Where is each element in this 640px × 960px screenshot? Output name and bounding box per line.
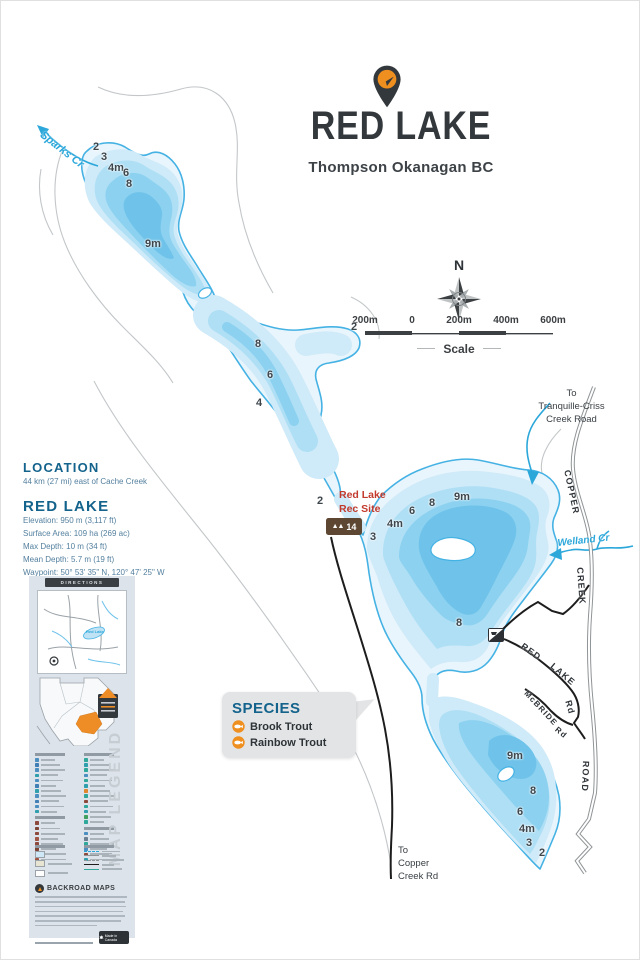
scale-label: Scale bbox=[443, 342, 474, 356]
legend-item-text-bar bbox=[90, 833, 104, 835]
depth-label: 9m bbox=[507, 750, 523, 762]
legend-row bbox=[35, 821, 80, 825]
page-subtitle: Thompson Okanagan BC bbox=[251, 159, 551, 176]
depth-label: 8 bbox=[429, 497, 435, 509]
legend-item-icon bbox=[35, 784, 39, 788]
copyright-bar bbox=[35, 942, 93, 944]
directions-inset-map: Red Lake bbox=[37, 590, 127, 674]
fineprint-line bbox=[35, 911, 123, 913]
depth-label: 8 bbox=[456, 617, 462, 629]
legend-row bbox=[35, 779, 80, 783]
depth-label: 8 bbox=[530, 785, 536, 797]
legend-row bbox=[35, 805, 80, 809]
legend-item-icon bbox=[35, 779, 39, 783]
species-item-label: Brook Trout bbox=[250, 721, 312, 733]
north-label: N bbox=[439, 257, 479, 273]
legend-item-icon bbox=[84, 815, 88, 819]
legend-item-icon bbox=[84, 768, 88, 772]
legend-row bbox=[35, 837, 80, 841]
legend-item-icon bbox=[84, 800, 88, 804]
species-item: Brook Trout bbox=[232, 720, 346, 733]
legend-sidebar: DIRECTIONS Red Lake bbox=[29, 576, 135, 938]
species-item: Rainbow Trout bbox=[232, 736, 346, 749]
legend-item-icon bbox=[84, 832, 88, 836]
road-label-road: ROAD bbox=[580, 761, 591, 793]
depth-label: 2 bbox=[351, 321, 357, 333]
scale-tick: 200m bbox=[446, 315, 472, 326]
depth-label: 6 bbox=[409, 505, 415, 517]
brand-logo-icon bbox=[35, 884, 44, 893]
legend-item-text-bar bbox=[41, 806, 64, 808]
depth-label: 9m bbox=[454, 491, 470, 503]
destination-line: To bbox=[509, 387, 634, 400]
legend-item-icon bbox=[35, 810, 39, 814]
legend-item-icon bbox=[35, 821, 39, 825]
location-block: LOCATION 44 km (27 mi) east of Cache Cre… bbox=[23, 460, 193, 580]
scale-bar: 200m 0 200m 400m 600m Scale bbox=[353, 315, 565, 356]
map-poster-page: RED LAKE Thompson Okanagan BC N 200m 0 2… bbox=[0, 0, 640, 960]
legend-item-icon bbox=[84, 805, 88, 809]
destination-line: Creek Road bbox=[509, 413, 634, 426]
destination-label-ne: To Tranquille-Criss Creek Road bbox=[509, 387, 634, 426]
depth-label: 2 bbox=[539, 847, 545, 859]
made-in-canada-label: Made in Canada bbox=[105, 934, 129, 942]
depth-label: 2 bbox=[93, 141, 99, 153]
inset-lake-label: Red Lake bbox=[86, 629, 104, 634]
legend-row bbox=[35, 794, 80, 798]
depth-label: 6 bbox=[517, 806, 523, 818]
scale-tick: 400m bbox=[493, 315, 519, 326]
destination-line: To bbox=[398, 844, 468, 857]
brand-footer-row: Made in Canada bbox=[35, 931, 129, 944]
page-title: RED LAKE bbox=[274, 104, 529, 149]
scale-tick: 0 bbox=[409, 315, 415, 326]
legend-row bbox=[35, 774, 80, 778]
scale-ticks: 200m 0 200m 400m 600m bbox=[353, 315, 565, 328]
legend-item-icon bbox=[35, 837, 39, 841]
species-callout: SPECIES Brook Trout Rainbow Trout bbox=[222, 692, 356, 758]
legend-row bbox=[35, 768, 80, 772]
legend-item-text-bar bbox=[41, 780, 63, 782]
made-in-canada-badge: Made in Canada bbox=[99, 931, 129, 944]
legend-item-text-bar bbox=[41, 759, 55, 761]
legend-item-icon bbox=[84, 758, 88, 762]
lake-indicators bbox=[35, 842, 80, 877]
legend-item-text-bar bbox=[90, 800, 108, 802]
brand-title: BACKROAD MAPS bbox=[47, 885, 115, 892]
depth-label: 3 bbox=[526, 837, 532, 849]
legend-item-icon bbox=[35, 763, 39, 767]
legend-item-text-bar bbox=[41, 790, 61, 792]
depth-label: 2 bbox=[317, 495, 323, 507]
line-indicators bbox=[84, 842, 129, 877]
species-item-label: Rainbow Trout bbox=[250, 737, 326, 749]
depth-label: 4 bbox=[256, 397, 262, 409]
legend-item-icon bbox=[35, 789, 39, 793]
depth-label: 4m bbox=[108, 162, 124, 174]
destination-line: Copper bbox=[398, 857, 468, 870]
legend-item-icon bbox=[84, 784, 88, 788]
legend-item-icon bbox=[84, 774, 88, 778]
destination-line: Tranquille-Criss bbox=[509, 400, 634, 413]
legend-item-icon bbox=[84, 763, 88, 767]
legend-item-text-bar bbox=[90, 764, 109, 766]
legend-item-text-bar bbox=[90, 838, 109, 840]
fineprint-line bbox=[35, 901, 125, 903]
lake-info-line: Mean Depth: 5.7 m (19 ft) bbox=[23, 554, 193, 567]
legend-item-icon bbox=[35, 774, 39, 778]
legend-item-icon bbox=[84, 789, 88, 793]
legend-item-icon bbox=[35, 758, 39, 762]
fineprint-line bbox=[35, 906, 126, 908]
legend-item-icon bbox=[35, 794, 39, 798]
lake-info-heading: RED LAKE bbox=[23, 498, 193, 515]
legend-row bbox=[35, 784, 80, 788]
legend-item-icon bbox=[84, 779, 88, 783]
legend-row bbox=[35, 758, 80, 762]
legend-item-text-bar bbox=[90, 759, 104, 761]
maple-leaf-icon bbox=[99, 935, 104, 940]
rec-site-line: Rec Site bbox=[339, 502, 386, 516]
legend-item-icon bbox=[35, 827, 39, 831]
legend-item-text-bar bbox=[41, 811, 57, 813]
legend-item-icon bbox=[35, 768, 39, 772]
species-heading: SPECIES bbox=[232, 700, 346, 717]
mini-indicators bbox=[35, 842, 129, 877]
depth-label: 8 bbox=[255, 338, 261, 350]
legend-item-text-bar bbox=[41, 800, 59, 802]
legend-item-text-bar bbox=[41, 828, 60, 830]
legend-item-icon bbox=[84, 837, 88, 841]
legend-item-icon bbox=[35, 832, 39, 836]
fineprint-line bbox=[35, 925, 97, 927]
legend-row bbox=[35, 827, 80, 831]
copper-creek-road-fill bbox=[573, 387, 596, 873]
fish-icon bbox=[232, 720, 245, 733]
rec-site-label: Red Lake Rec Site bbox=[339, 488, 386, 516]
legend-item-text-bar bbox=[41, 785, 56, 787]
depth-label: 8 bbox=[126, 178, 132, 190]
fish-icon bbox=[232, 736, 245, 749]
depth-label: 9m bbox=[145, 238, 161, 250]
legend-row bbox=[35, 832, 80, 836]
legend-item-text-bar bbox=[90, 811, 106, 813]
lake-info-line: Surface Area: 109 ha (269 ac) bbox=[23, 528, 193, 541]
fineprint-line bbox=[35, 915, 125, 917]
legend-item-text-bar bbox=[90, 785, 105, 787]
depth-label: 4m bbox=[519, 823, 535, 835]
scale-label-row: Scale bbox=[353, 342, 565, 356]
brand-pin-logo bbox=[370, 63, 404, 109]
depth-label: 3 bbox=[370, 531, 376, 543]
legend-item-text-bar bbox=[90, 774, 107, 776]
legend-group-header bbox=[35, 816, 65, 819]
legend-item-text-bar bbox=[41, 838, 58, 840]
location-heading: LOCATION bbox=[23, 460, 193, 475]
brand-row: BACKROAD MAPS bbox=[35, 884, 129, 893]
directions-ribbon: DIRECTIONS bbox=[45, 578, 119, 587]
destination-label-s: To Copper Creek Rd bbox=[398, 844, 468, 883]
legend-item-text-bar bbox=[41, 774, 58, 776]
legend-item-icon bbox=[35, 800, 39, 804]
legend-item-text-bar bbox=[41, 833, 65, 835]
depth-label: 6 bbox=[267, 369, 273, 381]
fineprint-line bbox=[35, 920, 121, 922]
campsite-count: 14 bbox=[346, 522, 356, 532]
lake-info-line: Elevation: 950 m (3,117 ft) bbox=[23, 515, 193, 528]
scale-bar-segments bbox=[353, 330, 565, 336]
brand-section: BACKROAD MAPS Made in Canada bbox=[35, 884, 129, 944]
lake-info-line: Max Depth: 10 m (34 ft) bbox=[23, 541, 193, 554]
tent-icon: ▲▲ bbox=[332, 523, 344, 530]
depth-label: 4m bbox=[387, 518, 403, 530]
legend-item-text-bar bbox=[41, 764, 60, 766]
legend-item-text-bar bbox=[90, 821, 104, 823]
rec-site-line: Red Lake bbox=[339, 488, 386, 502]
legend-item-icon bbox=[84, 794, 88, 798]
legend-item-icon bbox=[84, 810, 88, 814]
legend-row bbox=[35, 789, 80, 793]
legend-item-icon bbox=[35, 805, 39, 809]
boat-launch-icon bbox=[488, 628, 504, 642]
location-text: 44 km (27 mi) east of Cache Creek bbox=[23, 477, 193, 486]
legend-item-text-bar bbox=[41, 769, 65, 771]
fineprint-line bbox=[35, 896, 127, 898]
legend-row bbox=[35, 810, 80, 814]
destination-line: Creek Rd bbox=[398, 870, 468, 883]
legend-row bbox=[35, 763, 80, 767]
legend-group-header bbox=[35, 753, 65, 756]
campground-icon: ▲▲ 14 bbox=[326, 518, 362, 535]
depth-label: 3 bbox=[101, 151, 107, 163]
legend-item-icon bbox=[84, 820, 88, 824]
legend-item-text-bar bbox=[41, 795, 66, 797]
scale-tick: 600m bbox=[540, 315, 566, 326]
legend-row bbox=[35, 800, 80, 804]
legend-item-text-bar bbox=[41, 822, 55, 824]
